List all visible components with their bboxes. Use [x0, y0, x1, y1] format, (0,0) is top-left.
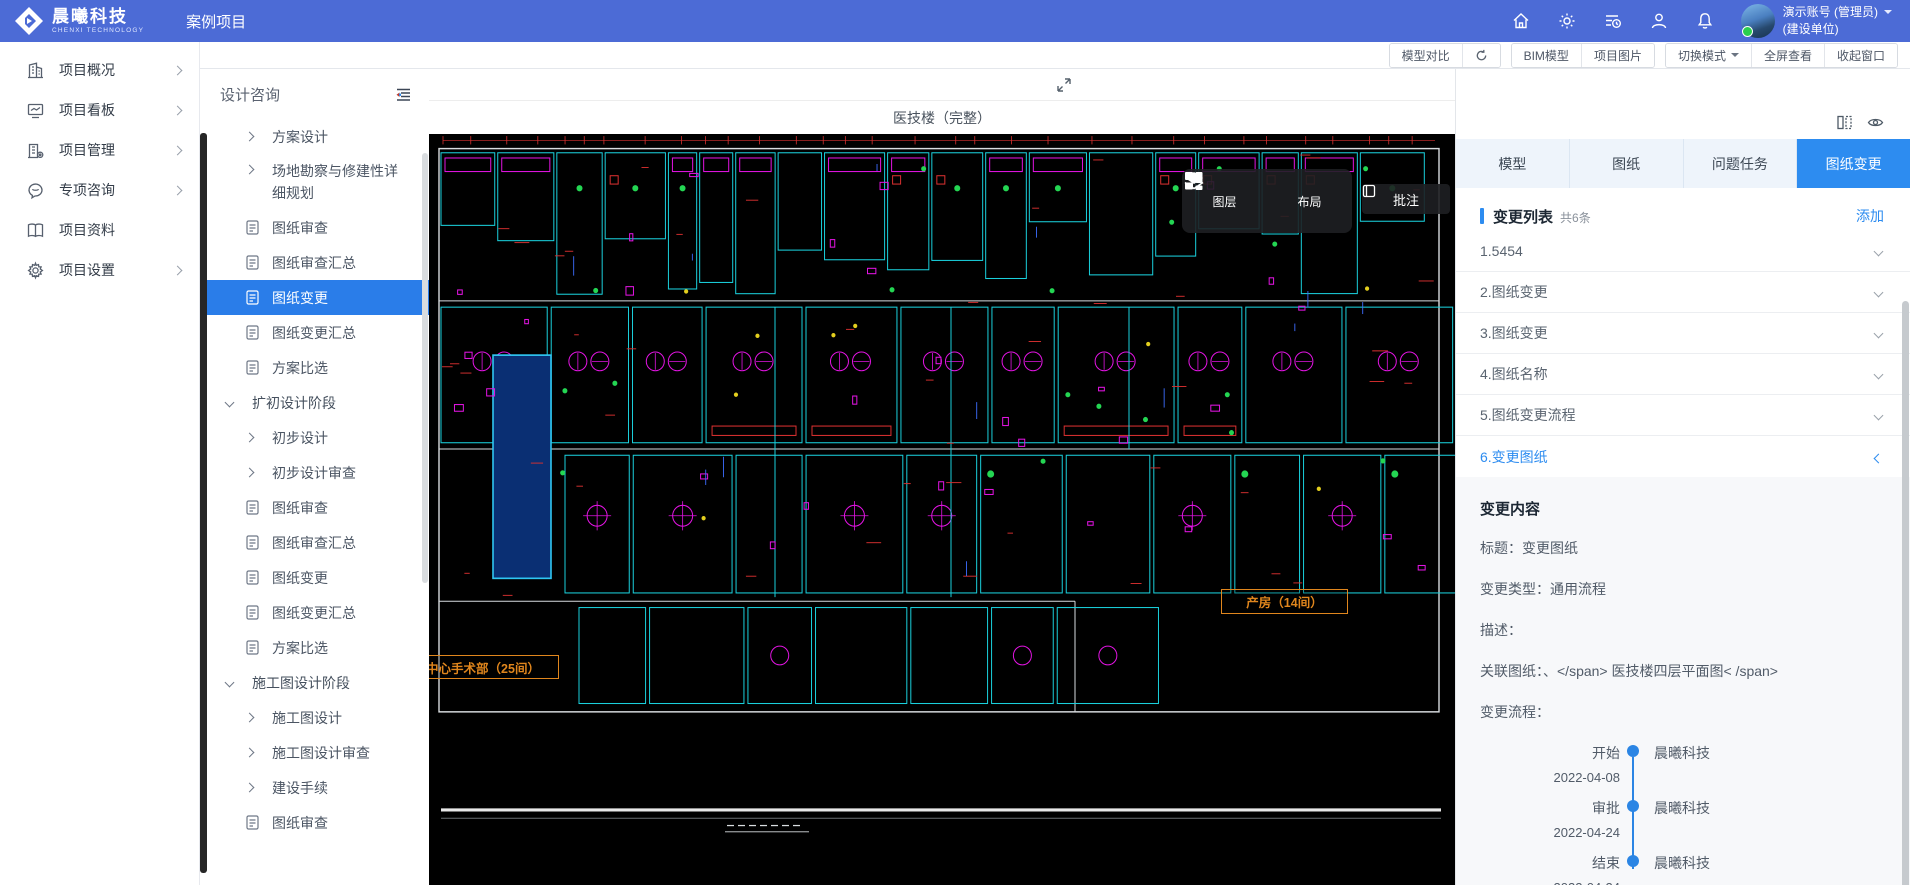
tree-scrollbar-left[interactable]	[200, 133, 207, 873]
document-icon	[246, 290, 259, 305]
chevron-right-icon	[245, 748, 255, 758]
change-flow-timeline: 开始 2022-04-08 晨曦科技 审批 2022-04-24	[1480, 743, 1886, 885]
document-icon	[246, 640, 259, 655]
chevron-down-icon	[1874, 246, 1884, 256]
detail-heading: 变更内容	[1480, 498, 1886, 519]
brand-logo[interactable]: 晨曦科技 CHENXI TECHNOLOGY	[14, 6, 144, 36]
tab-drawing-changes[interactable]: 图纸变更	[1797, 139, 1910, 188]
sidebar-item-label: 项目看板	[59, 100, 115, 120]
tree-item[interactable]: 图纸审查汇总	[200, 245, 429, 280]
cad-label-surgery: 中心手术部（25间）	[429, 655, 559, 679]
chevron-right-icon	[245, 132, 255, 142]
tab-model[interactable]: 模型	[1456, 139, 1570, 188]
collapse-arrows-icon[interactable]	[1055, 76, 1073, 94]
document-icon	[246, 605, 259, 620]
brand-subtitle: CHENXI TECHNOLOGY	[52, 28, 144, 35]
chevron-down-icon	[1874, 410, 1884, 420]
avatar	[1741, 4, 1775, 38]
tree-scrollbar-right[interactable]	[422, 153, 428, 583]
home-icon[interactable]	[1511, 11, 1531, 31]
switch-mode-button[interactable]: 切换模式	[1666, 44, 1751, 67]
tree-item[interactable]: 图纸变更	[200, 560, 429, 595]
tree-item[interactable]: 初步设计审查	[200, 455, 429, 490]
chevron-down-icon	[225, 678, 235, 688]
change-list-count: 共6条	[1560, 207, 1591, 226]
user-org: (建设单位)	[1783, 21, 1892, 38]
tree-item[interactable]: 场地勘察与修建性详细规划	[200, 154, 429, 210]
right-panel: 模型 图纸 问题任务 图纸变更 变更列表 共6条 添加 1.5454	[1455, 69, 1910, 885]
caret-down-icon	[1731, 53, 1739, 61]
chevron-right-icon	[173, 105, 183, 115]
sidebar-item-consulting[interactable]: 专项咨询	[0, 170, 199, 210]
change-item-expanded[interactable]: 6.变更图纸	[1456, 436, 1910, 477]
change-item[interactable]: 2.图纸变更	[1456, 272, 1910, 313]
chevron-up-icon	[1874, 454, 1884, 464]
cad-label-ward: 产房（14间）	[1221, 589, 1348, 614]
chevron-right-icon	[245, 783, 255, 793]
sidebar-item-label: 项目管理	[59, 140, 115, 160]
tree-item[interactable]: 方案比选	[200, 630, 429, 665]
user-name: 演示账号 (管理员)	[1783, 4, 1878, 21]
gear-icon[interactable]	[1557, 11, 1577, 31]
chevron-right-icon	[173, 265, 183, 275]
design-tree-panel: 设计咨询 方案设计 场地勘察与修建性详细规划	[200, 69, 429, 885]
sidebar-item-label: 项目概况	[59, 60, 115, 80]
tree-item[interactable]: 施工图设计	[200, 700, 429, 735]
layout-button[interactable]: 布局	[1297, 193, 1321, 210]
timeline-step: 审批 2022-04-24 晨曦科技	[1480, 798, 1886, 853]
viewer-toolbar: 模型对比 BIM模型 项目图片 切换模式	[200, 42, 1910, 69]
tree-item[interactable]: 图纸变更汇总	[200, 315, 429, 350]
chevron-right-icon	[245, 713, 255, 723]
sidebar-item-overview[interactable]: 项目概况	[0, 50, 199, 90]
cad-viewer: 医技楼（完整） 图层	[429, 69, 1455, 885]
sidebar-item-settings[interactable]: 项目设置	[0, 250, 199, 290]
model-compare-button[interactable]: 模型对比	[1390, 44, 1462, 67]
tree-item-selected[interactable]: 图纸变更	[200, 280, 429, 315]
detail-field-title: 标题：变更图纸	[1480, 538, 1886, 558]
main-sidebar: 项目概况 项目看板 项目管理 专项	[0, 42, 200, 885]
tree-item[interactable]: 初步设计	[200, 420, 429, 455]
tree-item[interactable]: 图纸变更汇总	[200, 595, 429, 630]
tab-issues[interactable]: 问题任务	[1684, 139, 1798, 188]
timeline-dot	[1627, 745, 1639, 757]
tree-item[interactable]: 图纸审查	[200, 490, 429, 525]
tree-item[interactable]: 方案设计	[200, 119, 429, 154]
indent-collapse-icon[interactable]	[394, 85, 413, 104]
building-gear-icon	[26, 141, 45, 160]
cad-drawing	[429, 134, 1455, 885]
chevron-down-icon	[225, 398, 235, 408]
building-icon	[26, 61, 45, 80]
chevron-right-icon	[245, 433, 255, 443]
sidebar-item-label: 项目资料	[59, 220, 115, 240]
detail-field-flow: 变更流程：	[1480, 702, 1886, 722]
right-panel-scrollbar[interactable]	[1902, 301, 1909, 885]
detail-field-type: 变更类型：通用流程	[1480, 579, 1886, 599]
board-chart-icon	[26, 101, 45, 120]
chevron-right-icon	[173, 65, 183, 75]
chevron-right-icon	[245, 468, 255, 478]
sidebar-item-documents[interactable]: 项目资料	[0, 210, 199, 250]
add-change-link[interactable]: 添加	[1856, 206, 1884, 226]
grid-layout-icon	[1182, 169, 1206, 193]
document-icon	[246, 325, 259, 340]
tab-drawings[interactable]: 图纸	[1570, 139, 1684, 188]
document-icon	[246, 500, 259, 515]
sidebar-item-label: 专项咨询	[59, 180, 115, 200]
timeline-line	[1632, 757, 1634, 869]
document-icon	[246, 220, 259, 235]
tree-panel-title: 设计咨询	[220, 84, 280, 105]
document-icon	[246, 255, 259, 270]
document-icon	[246, 360, 259, 375]
chevron-right-icon	[245, 165, 255, 175]
detail-field-linked-drawing: 关联图纸：、</span> 医技楼四层平面图< /span>	[1480, 661, 1886, 681]
fullscreen-button[interactable]: 全屏查看	[1751, 44, 1824, 67]
columns-icon[interactable]	[1836, 114, 1853, 131]
project-photos-button[interactable]: 项目图片	[1581, 44, 1654, 67]
timeline-step: 开始 2022-04-08 晨曦科技	[1480, 743, 1886, 798]
change-list-title: 变更列表	[1493, 206, 1553, 227]
brand-mark-icon	[14, 6, 44, 36]
document-icon	[246, 815, 259, 830]
sidebar-item-label: 项目设置	[59, 260, 115, 280]
chevron-down-icon	[1884, 10, 1892, 18]
chevron-down-icon	[1874, 287, 1884, 297]
collapse-window-button[interactable]: 收起窗口	[1824, 44, 1897, 67]
user-icon[interactable]	[1649, 11, 1669, 31]
chevron-down-icon	[1874, 328, 1884, 338]
chevron-right-icon	[173, 185, 183, 195]
tree-stage-item[interactable]: 施工图设计阶段	[200, 665, 429, 700]
right-panel-tabs: 模型 图纸 问题任务 图纸变更	[1456, 139, 1910, 188]
chat-icon	[26, 181, 45, 200]
tree-item[interactable]: 图纸审查汇总	[200, 525, 429, 560]
sidebar-item-dashboard[interactable]: 项目看板	[0, 90, 199, 130]
detail-field-description: 描述：	[1480, 620, 1886, 640]
chevron-right-icon	[173, 145, 183, 155]
change-item[interactable]: 4.图纸名称	[1456, 354, 1910, 395]
page-title: 案例项目	[186, 11, 246, 32]
accent-bar	[1480, 208, 1484, 224]
refresh-icon	[1475, 49, 1488, 62]
sidebar-item-management[interactable]: 项目管理	[0, 130, 199, 170]
document-icon	[246, 535, 259, 550]
user-account[interactable]: 演示账号 (管理员) (建设单位)	[1741, 4, 1892, 39]
change-item[interactable]: 3.图纸变更	[1456, 313, 1910, 354]
tree-item[interactable]: 施工图设计审查	[200, 735, 429, 770]
layers-button[interactable]: 图层	[1212, 193, 1236, 210]
eye-icon[interactable]	[1867, 114, 1884, 131]
brand-name: 晨曦科技	[52, 8, 144, 25]
app-header: 晨曦科技 CHENXI TECHNOLOGY 案例项目	[0, 0, 1910, 42]
settings-gear-icon	[26, 261, 45, 280]
timeline-step: 结束 2022-04-24 晨曦科技	[1480, 853, 1886, 885]
annotate-icon	[1362, 184, 1376, 198]
book-icon	[26, 221, 45, 240]
bell-icon[interactable]	[1695, 11, 1715, 31]
chevron-down-icon	[1874, 369, 1884, 379]
change-item[interactable]: 1.5454	[1456, 231, 1910, 272]
drawing-title: 医技楼（完整）	[893, 108, 991, 128]
cad-canvas[interactable]: 图层 布局	[429, 134, 1455, 885]
refresh-button[interactable]	[1462, 44, 1500, 67]
tree-item[interactable]: 方案比选	[200, 350, 429, 385]
audit-log-icon[interactable]	[1603, 11, 1623, 31]
tree-stage-item[interactable]: 扩初设计阶段	[200, 385, 429, 420]
viewer-overlay-toolbar: 图层 布局	[1182, 169, 1352, 233]
bim-model-button[interactable]: BIM模型	[1512, 44, 1581, 67]
annotate-button[interactable]: 批注	[1362, 184, 1450, 214]
change-detail: 变更内容 标题：变更图纸 变更类型：通用流程 描述： 关联图纸：、</span>…	[1456, 477, 1910, 885]
tree-item[interactable]: 图纸审查	[200, 805, 429, 840]
tree-item[interactable]: 建设手续	[200, 770, 429, 805]
document-icon	[246, 570, 259, 585]
tree-item[interactable]: 图纸审查	[200, 210, 429, 245]
change-item[interactable]: 5.图纸变更流程	[1456, 395, 1910, 436]
